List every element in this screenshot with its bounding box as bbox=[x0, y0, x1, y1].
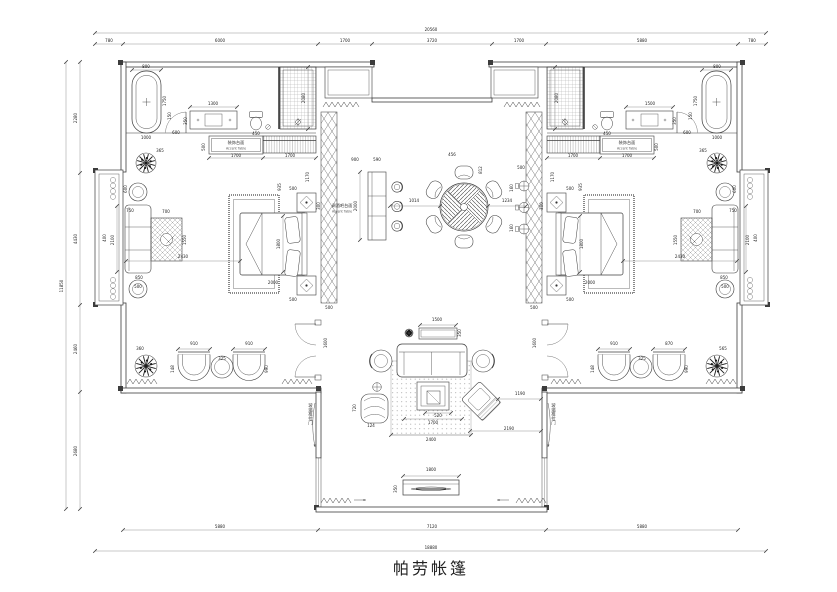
dim-label: 600 bbox=[172, 130, 180, 135]
nightstand-left-top bbox=[297, 193, 316, 212]
daybed-left bbox=[125, 205, 151, 273]
dim-label: 124 bbox=[367, 423, 375, 428]
dim-label: 500 bbox=[654, 143, 659, 151]
wall-fixture bbox=[516, 181, 530, 191]
nightstand-left-bottom bbox=[297, 276, 316, 295]
dim-label: 3720 bbox=[427, 38, 438, 43]
dim-label: 600 bbox=[123, 185, 128, 193]
counter-label-right-en: Accent Table bbox=[617, 147, 637, 151]
dim-label: 910 bbox=[610, 341, 618, 346]
dim-label: 11850 bbox=[59, 279, 64, 292]
dim-label: 360 bbox=[136, 346, 144, 351]
coffee-table bbox=[417, 382, 449, 410]
dim-label: 1234 bbox=[502, 198, 513, 203]
dim-label: 500 bbox=[566, 297, 574, 302]
dim-label: 1170 bbox=[550, 171, 555, 182]
dim-label: 150 bbox=[688, 112, 693, 120]
dim-label: 1550 bbox=[182, 234, 187, 245]
dim-label: 600 bbox=[683, 130, 691, 135]
floor-plan-canvas: 2056078060001700372017005880780118502280… bbox=[0, 0, 837, 592]
dim-label: 590 bbox=[373, 157, 381, 162]
console-table bbox=[419, 328, 457, 339]
dim-label: 350 bbox=[183, 117, 188, 125]
dim-label: 350 bbox=[393, 485, 398, 493]
dim-label: 325 bbox=[638, 356, 646, 361]
dim-label: 700 bbox=[162, 209, 170, 214]
bar-label-en: Accent Table bbox=[332, 210, 352, 214]
dim-label: 2280 bbox=[73, 112, 78, 123]
bar-stool bbox=[392, 221, 403, 231]
dining-chair bbox=[455, 235, 473, 248]
dining-chair bbox=[424, 213, 444, 235]
dim-label: 1700 bbox=[285, 153, 296, 158]
dim-label: 935 bbox=[578, 183, 583, 191]
dim-label: 500 bbox=[134, 284, 142, 289]
dim-label: 500 bbox=[566, 186, 574, 191]
dim-label: 1750 bbox=[162, 95, 167, 106]
dim-label: 148 bbox=[170, 365, 175, 373]
dim-label: 800 bbox=[713, 64, 721, 69]
dim-label: 1800 bbox=[426, 467, 437, 472]
dim-label: 2680 bbox=[73, 445, 78, 456]
dim-label: 2430 bbox=[178, 254, 189, 259]
dim-label: 20560 bbox=[425, 27, 438, 32]
dining-chair bbox=[484, 213, 504, 235]
dim-label: 990 bbox=[264, 365, 269, 373]
dim-label: 850 bbox=[135, 275, 143, 280]
dim-label: 5880 bbox=[215, 524, 226, 529]
wardrobe-left bbox=[263, 136, 316, 153]
dim-label: 1800 bbox=[579, 238, 584, 249]
bar-stool bbox=[392, 182, 403, 192]
counter-label-right-cn: 装饰台面 bbox=[619, 139, 636, 146]
bathtub-left bbox=[132, 71, 161, 133]
dim-label: 720 bbox=[352, 404, 357, 412]
dimension-lines bbox=[64, 31, 768, 553]
dim-label: 450 bbox=[603, 131, 611, 136]
dim-label: 1800 bbox=[276, 238, 281, 249]
dim-label: 365 bbox=[156, 148, 164, 153]
dim-label: 1700 bbox=[340, 38, 351, 43]
dining-chair bbox=[424, 179, 444, 201]
dim-label: 1170 bbox=[305, 171, 310, 182]
dim-label: 1300 bbox=[208, 101, 219, 106]
dim-label: 600 bbox=[732, 185, 737, 193]
dim-label: 2080 bbox=[301, 92, 306, 103]
dim-label: 780 bbox=[748, 38, 756, 43]
dim-label: 1700 bbox=[568, 153, 579, 158]
dim-label: 325 bbox=[218, 356, 226, 361]
dim-label: 2000 bbox=[353, 200, 358, 211]
tv-console bbox=[403, 480, 459, 495]
dim-label: 500 bbox=[517, 165, 525, 170]
sitting-doors-left bbox=[295, 320, 321, 380]
curtain-zigzag bbox=[321, 498, 351, 503]
dim-label: 2430 bbox=[675, 254, 686, 259]
dim-label: 1190 bbox=[515, 391, 526, 396]
dim-label: 565 bbox=[719, 346, 727, 351]
curtain-zigzag bbox=[127, 379, 157, 384]
side-table-bottom-left bbox=[129, 280, 147, 298]
dim-label: 450 bbox=[252, 131, 260, 136]
curtain-zigzag bbox=[282, 379, 312, 384]
dim-label: 1000 bbox=[712, 135, 723, 140]
shower-left bbox=[279, 67, 316, 129]
side-table-top-left bbox=[129, 183, 147, 201]
bar-stool bbox=[392, 201, 403, 211]
floor-lamp bbox=[373, 383, 382, 392]
plant-icon bbox=[405, 329, 413, 337]
dim-label: 18880 bbox=[425, 545, 438, 550]
dining-chair bbox=[455, 166, 473, 179]
dim-label: 1700 bbox=[231, 153, 242, 158]
dim-label: 750 bbox=[126, 208, 134, 213]
entry-closet-left bbox=[325, 67, 372, 98]
plant-icon bbox=[135, 355, 157, 377]
dim-label: 1500 bbox=[645, 101, 656, 106]
dim-label: 300 bbox=[316, 202, 321, 210]
barrel-chair bbox=[233, 352, 265, 381]
wall-fixture bbox=[516, 203, 530, 213]
sliding-door-label-right: 玻璃推拉门 bbox=[551, 402, 556, 427]
dim-label: 1500 bbox=[432, 317, 443, 322]
dim-label: 6000 bbox=[215, 38, 226, 43]
swivel-chair-left bbox=[370, 350, 392, 372]
dim-label: 2100 bbox=[745, 234, 750, 245]
drawing-title: 帕劳帐篷 bbox=[393, 559, 469, 578]
toilet-left bbox=[250, 112, 263, 131]
dim-label: 7120 bbox=[427, 524, 438, 529]
counter-label-left-en: Accent Table bbox=[226, 147, 246, 151]
dim-label: 2100 bbox=[110, 234, 115, 245]
dim-label: 1014 bbox=[409, 198, 420, 203]
dim-label: 800 bbox=[142, 64, 150, 69]
dim-label: 5880 bbox=[637, 38, 648, 43]
bar-label-cn: 调酒吧台面 bbox=[332, 202, 353, 209]
dim-label: 456 bbox=[448, 152, 456, 157]
floor-drain-left bbox=[266, 125, 271, 130]
dim-label: 150 bbox=[167, 112, 172, 120]
dim-label: 500 bbox=[289, 297, 297, 302]
dim-label: 400 bbox=[753, 234, 758, 242]
dim-label: 500 bbox=[325, 305, 333, 310]
curtain-zigzag bbox=[516, 498, 546, 503]
dim-label: 500 bbox=[201, 143, 206, 151]
dim-label: 850 bbox=[720, 275, 728, 280]
chaise-lounge bbox=[361, 394, 388, 423]
dim-label: 365 bbox=[699, 148, 707, 153]
wall-fixture bbox=[516, 224, 530, 234]
dim-label: 148 bbox=[590, 365, 595, 373]
plant-icon bbox=[136, 153, 156, 173]
curtain-zigzag bbox=[323, 102, 359, 107]
swivel-chair-right bbox=[472, 350, 494, 372]
dim-label: 700 bbox=[693, 209, 701, 214]
dim-label: 1700 bbox=[428, 420, 439, 425]
bar-counter bbox=[368, 172, 386, 240]
sliding-door-label-left: 玻璃推拉门 bbox=[308, 402, 313, 427]
dim-label: 870 bbox=[665, 341, 673, 346]
dim-label: 990 bbox=[684, 365, 689, 373]
dim-label: 750 bbox=[729, 208, 737, 213]
dimension-labels: 2056078060001700372017005880780118502280… bbox=[59, 27, 758, 550]
dim-label: 4430 bbox=[73, 233, 78, 244]
dressing-table-left bbox=[190, 111, 237, 129]
dim-label: 160 bbox=[509, 184, 514, 192]
dim-label: 2000 bbox=[585, 280, 596, 285]
floor-plan-page: 2056078060001700372017005880780118502280… bbox=[0, 0, 837, 592]
dim-label: 2080 bbox=[554, 92, 559, 103]
dim-label: 300 bbox=[539, 202, 544, 210]
dim-label: 900 bbox=[351, 157, 359, 162]
accent-counter-left bbox=[209, 136, 263, 154]
dim-label: 400 bbox=[102, 234, 107, 242]
dim-label: 780 bbox=[105, 38, 113, 43]
dim-label: 2400 bbox=[426, 437, 437, 442]
dim-label: 2460 bbox=[73, 343, 78, 354]
dim-label: 2000 bbox=[268, 280, 279, 285]
dim-label: 520 bbox=[434, 413, 442, 418]
dim-label: 500 bbox=[530, 305, 538, 310]
dim-label: 1750 bbox=[693, 95, 698, 106]
dim-label: 5880 bbox=[637, 524, 648, 529]
dim-label: 910 bbox=[190, 341, 198, 346]
barrel-chair bbox=[178, 352, 210, 381]
dining-set bbox=[424, 166, 504, 248]
slide-direction-arrow-left bbox=[313, 403, 315, 447]
dim-label: 1550 bbox=[673, 234, 678, 245]
dim-label: 1600 bbox=[532, 337, 537, 348]
dim-label: 350 bbox=[672, 117, 677, 125]
dim-label: 935 bbox=[277, 183, 282, 191]
dim-label: 1700 bbox=[622, 153, 633, 158]
dim-label: 910 bbox=[245, 341, 253, 346]
sofa bbox=[397, 344, 467, 377]
dim-label: 500 bbox=[289, 186, 297, 191]
counter-label-left-cn: 装饰台面 bbox=[228, 139, 245, 146]
dim-label: 350 bbox=[457, 329, 462, 337]
dim-label: 160 bbox=[509, 224, 514, 232]
dim-label: 1600 bbox=[323, 337, 328, 348]
bay-window-left bbox=[95, 170, 123, 305]
dim-label: 500 bbox=[721, 284, 729, 289]
dim-label: 1700 bbox=[514, 38, 525, 43]
dim-label: 1000 bbox=[141, 135, 152, 140]
dim-label: 812 bbox=[478, 166, 483, 174]
dim-label: 2190 bbox=[504, 426, 515, 431]
bed-left bbox=[240, 213, 307, 277]
